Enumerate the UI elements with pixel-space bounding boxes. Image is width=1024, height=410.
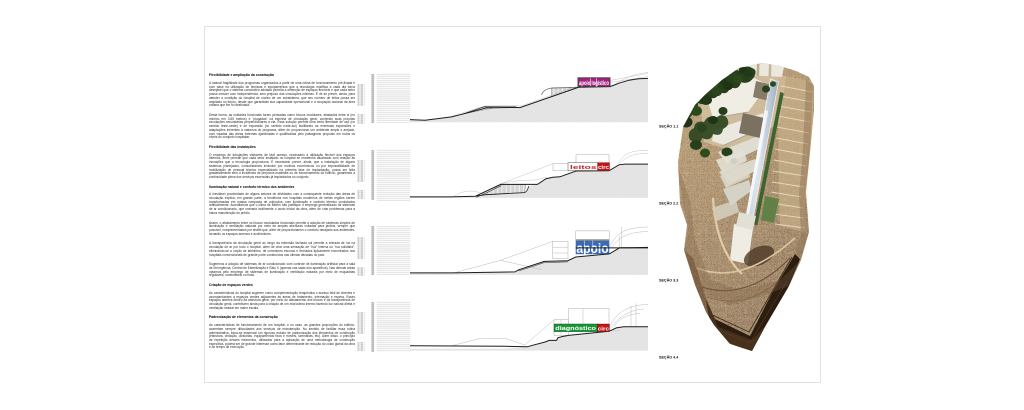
svg-text:SEÇÃO 4.4: SEÇÃO 4.4 (659, 354, 679, 359)
svg-text:circ: circ (598, 165, 609, 171)
svg-text:diagnóstico: diagnóstico (555, 326, 596, 332)
svg-text:SEÇÃO 3.3: SEÇÃO 3.3 (659, 277, 678, 282)
svg-text:SEÇÃO 2.2: SEÇÃO 2.2 (659, 200, 678, 205)
svg-text:apoio logístico: apoio logístico (579, 80, 609, 87)
svg-text:leitos: leitos (570, 165, 597, 171)
svg-text:SEÇÃO 1.1: SEÇÃO 1.1 (659, 123, 678, 128)
svg-text:circ: circ (598, 327, 609, 333)
